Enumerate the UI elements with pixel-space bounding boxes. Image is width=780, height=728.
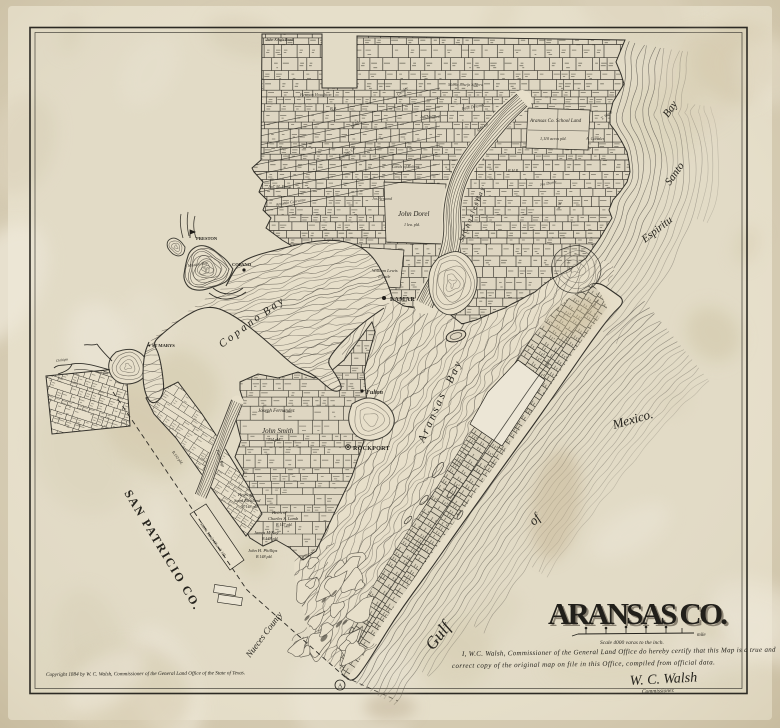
svg-text:B 148 pld.: B 148 pld. [242, 504, 259, 509]
svg-text:Aransas Co. School Land: Aransas Co. School Land [529, 119, 582, 124]
svg-text:B 148 pld.: B 148 pld. [262, 536, 279, 541]
svg-text:James MᶜKay: James MᶜKay [254, 530, 279, 535]
svg-text:1/3 mile: 1/3 mile [378, 275, 391, 279]
svg-text:John Dorel: John Dorel [398, 210, 429, 218]
svg-text:A: A [338, 684, 343, 690]
svg-text:COPANO: COPANO [232, 262, 252, 267]
svg-text:154 pld.: 154 pld. [268, 437, 281, 442]
svg-text:Commissioner.: Commissioner. [642, 688, 675, 695]
svg-text:ROCKPORT: ROCKPORT [353, 446, 390, 452]
svg-text:PRESTON: PRESTON [196, 236, 218, 241]
svg-text:John King's Road: John King's Road [266, 38, 293, 42]
svg-text:John H. Phillips: John H. Phillips [248, 548, 278, 553]
svg-text:William Lewis: William Lewis [372, 268, 398, 273]
svg-text:mile: mile [697, 633, 706, 638]
svg-text:● ST MARYS: ● ST MARYS [148, 343, 175, 348]
svg-text:B 147 pld.: B 147 pld. [276, 522, 293, 527]
svg-text:Jos Armand: Jos Armand [372, 196, 393, 201]
svg-text:Lands of Robert: Lands of Robert [391, 164, 420, 169]
svg-text:B 148 pld.: B 148 pld. [256, 554, 273, 559]
svg-text:Jno. M. Doxy: Jno. M. Doxy [268, 184, 291, 189]
svg-text:Scale 4000 varas to the inch.: Scale 4000 varas to the inch. [600, 639, 664, 646]
svg-text:Jas Mitchell: Jas Mitchell [420, 114, 441, 119]
svg-text:LAMAR: LAMAR [390, 297, 415, 303]
svg-text:John Smith: John Smith [262, 427, 294, 435]
svg-text:Charles S. Lamb: Charles S. Lamb [268, 516, 299, 521]
svg-text:1 lea. pld.: 1 lea. pld. [404, 222, 420, 227]
svg-text:B.P.: B.P. [330, 106, 337, 111]
svg-text:Joseph Fernandez: Joseph Fernandez [258, 409, 295, 414]
svg-text:Fulton: Fulton [366, 390, 384, 396]
svg-text:Herman Houghton: Herman Houghton [299, 92, 332, 97]
svg-text:A. Canales: A. Canales [585, 136, 605, 141]
svg-text:Heirs of: Heirs of [271, 510, 287, 515]
svg-text:ARANSAS CO.: ARANSAS CO. [548, 596, 730, 631]
svg-text:R.H.R.: R.H.R. [507, 168, 519, 173]
svg-text:Maria Josefa Silvera: Maria Josefa Silvera [447, 82, 483, 87]
svg-text:Heirs of: Heirs of [237, 492, 253, 497]
svg-text:Saml Richland: Saml Richland [234, 498, 261, 503]
